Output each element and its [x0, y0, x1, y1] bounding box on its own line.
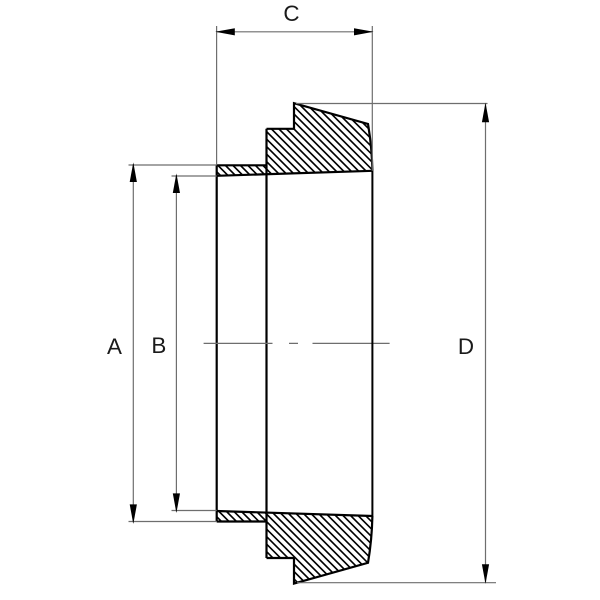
svg-text:A: A — [107, 334, 122, 359]
svg-text:C: C — [283, 1, 299, 26]
svg-text:B: B — [151, 333, 166, 358]
svg-text:D: D — [458, 334, 474, 359]
